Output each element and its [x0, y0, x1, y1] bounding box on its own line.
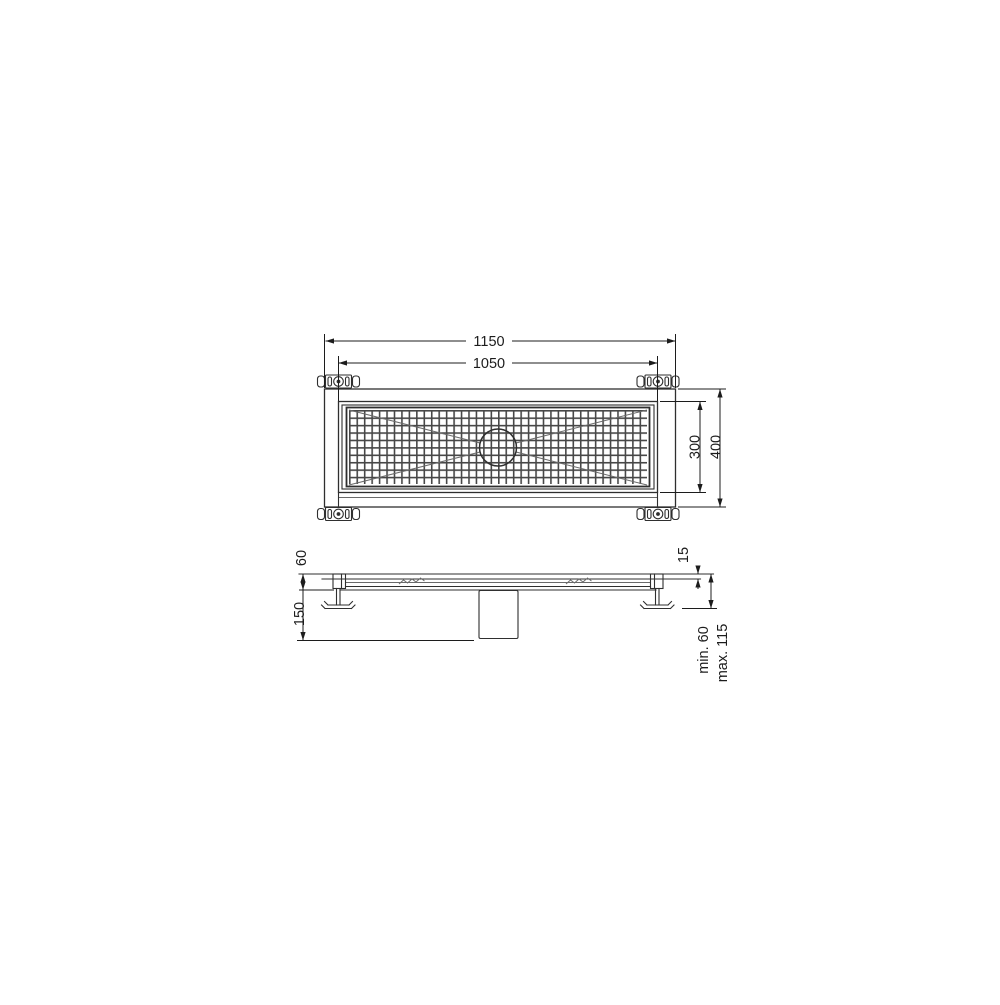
dim-label-150: 150 — [292, 602, 308, 626]
mounting-bracket-bottom-right — [637, 508, 679, 521]
dim-label-400: 400 — [709, 435, 725, 459]
dim-label-60: 60 — [294, 550, 310, 566]
outlet-pipe — [479, 591, 518, 639]
adjustable-foot-right — [641, 589, 675, 609]
dim-outlet-depth: 150 — [292, 602, 474, 641]
dim-grate-width: 300 — [660, 402, 706, 493]
dim-edge-height: 15 — [676, 547, 701, 589]
dim-label-300: 300 — [688, 435, 704, 459]
adjustable-foot-left — [322, 589, 356, 609]
drawing-canvas: 1150 1050 300 — [0, 0, 1000, 1000]
dim-grate-length: 1050 — [339, 356, 658, 401]
dim-label-15: 15 — [676, 547, 692, 563]
technical-drawing: 1150 1050 300 — [0, 0, 1000, 1000]
top-view: 1150 1050 300 — [318, 334, 727, 521]
dim-label-1050: 1050 — [473, 356, 505, 372]
dim-label-1150: 1150 — [473, 334, 504, 350]
channel-body-profile — [333, 574, 663, 590]
side-view: 60 150 15 min. 60 — [292, 547, 731, 682]
dim-label-max-115: max. 115 — [715, 624, 731, 683]
end-cap-right — [651, 574, 664, 589]
end-cap-left — [333, 574, 346, 589]
mounting-bracket-bottom-left — [318, 508, 360, 521]
dim-label-min-60: min. 60 — [696, 626, 712, 674]
dim-install-height: min. 60 max. 115 — [682, 574, 731, 682]
